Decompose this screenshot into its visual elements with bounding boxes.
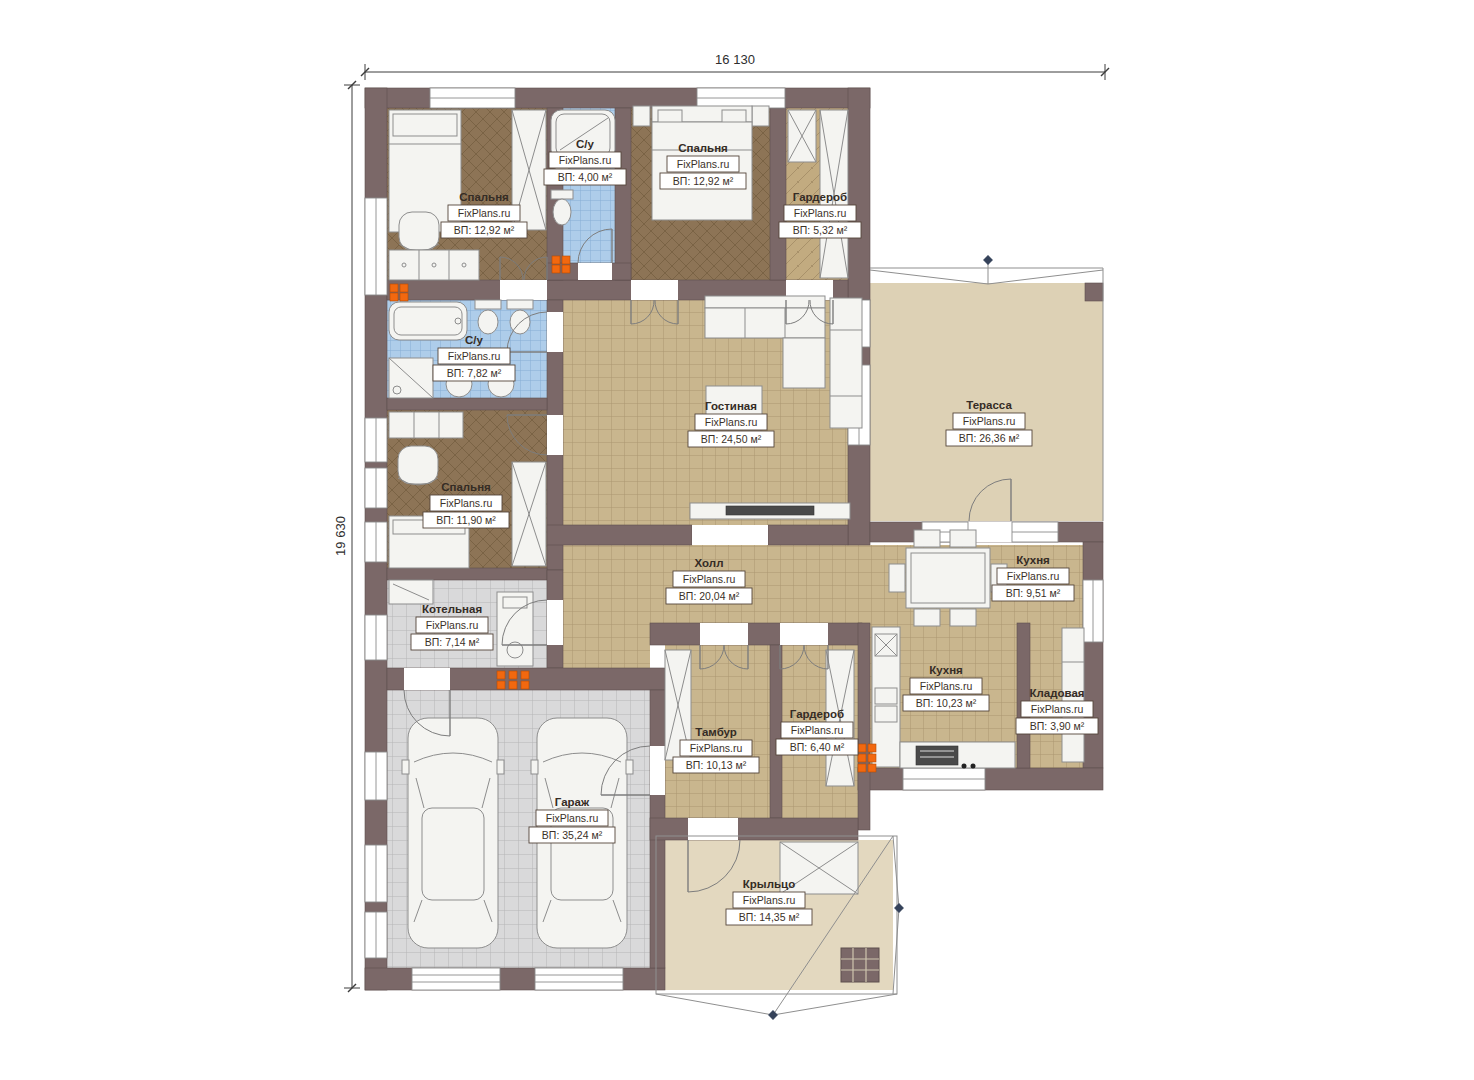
room-area: ВП: 7,82 м² xyxy=(447,367,502,379)
room-area: ВП: 26,36 м² xyxy=(959,432,1020,444)
window xyxy=(430,88,515,108)
canopy-marker xyxy=(895,904,903,912)
brand-watermark: FixPlans.ru xyxy=(743,894,796,906)
room-name: Спальня xyxy=(459,191,509,203)
brand-watermark: FixPlans.ru xyxy=(963,415,1016,427)
wall-bath1-bed2 xyxy=(615,108,631,280)
wall-bed3-boiler xyxy=(387,568,547,580)
room-name: С/у xyxy=(465,334,484,346)
wardrobe-icon xyxy=(788,110,816,162)
room-name: Гардероб xyxy=(790,708,844,720)
window xyxy=(365,845,387,902)
room-name: Холл xyxy=(695,557,724,569)
armchair-icon xyxy=(398,446,438,485)
window xyxy=(365,198,387,295)
room-area: ВП: 4,00 м² xyxy=(558,171,613,183)
chair-icon xyxy=(914,530,940,547)
brand-watermark: FixPlans.ru xyxy=(440,497,493,509)
dresser-icon xyxy=(389,250,479,280)
dimension-top: 16 130 xyxy=(361,52,1109,80)
brand-watermark: FixPlans.ru xyxy=(690,742,743,754)
room-area: ВП: 24,50 м² xyxy=(701,433,762,445)
window xyxy=(365,468,387,508)
garage-door xyxy=(412,968,500,990)
wall-wardrobe-kitchen xyxy=(858,623,870,830)
room-name: Спальня xyxy=(678,142,728,154)
room-area: ВП: 12,92 м² xyxy=(454,224,515,236)
wall-bed2-wardrobe xyxy=(770,108,786,280)
wall-terrace-corner xyxy=(1085,283,1103,301)
room-name: Тамбур xyxy=(695,726,737,738)
room-area: ВП: 3,90 м² xyxy=(1030,720,1085,732)
chair-icon xyxy=(950,609,976,626)
armchair-icon xyxy=(399,212,439,251)
window xyxy=(365,615,387,660)
room-area: ВП: 10,23 м² xyxy=(916,697,977,709)
room-area: ВП: 5,32 м² xyxy=(793,224,848,236)
tv-stand-icon xyxy=(690,503,850,519)
window xyxy=(365,522,387,562)
window xyxy=(365,418,387,462)
room-area: ВП: 11,90 м² xyxy=(436,514,496,526)
window xyxy=(903,768,985,790)
wall-living-hall-west xyxy=(547,525,692,545)
room-name: Котельная xyxy=(422,603,482,615)
brand-watermark: FixPlans.ru xyxy=(1007,570,1060,582)
wall-bath2-bed3 xyxy=(387,398,547,410)
room-name: Терасса xyxy=(966,399,1012,411)
wall-living-hall-east xyxy=(768,525,848,545)
car-icon xyxy=(402,718,504,948)
chair-icon xyxy=(950,530,976,547)
shower-icon xyxy=(389,358,433,398)
washer-icon xyxy=(389,580,433,604)
room-name: Спальня xyxy=(441,481,491,493)
dresser-icon xyxy=(389,412,463,438)
brand-watermark: FixPlans.ru xyxy=(448,350,501,362)
brand-watermark: FixPlans.ru xyxy=(559,154,612,166)
room-name: Гостиная xyxy=(705,400,757,412)
stove-knob xyxy=(971,764,976,769)
brand-watermark: FixPlans.ru xyxy=(1031,703,1084,715)
wall-vestibule-wardrobe xyxy=(770,645,782,818)
brand-watermark: FixPlans.ru xyxy=(458,207,511,219)
brand-watermark: FixPlans.ru xyxy=(794,207,847,219)
room-area: ВП: 6,40 м² xyxy=(790,741,845,753)
room-area: ВП: 10,13 м² xyxy=(686,759,747,771)
grate-icon xyxy=(841,948,879,982)
room-name: Гардероб xyxy=(793,191,847,203)
window xyxy=(1012,522,1058,542)
canopy-marker xyxy=(769,1011,777,1019)
room-area: ВП: 20,04 м² xyxy=(679,590,740,602)
wall-hall-south xyxy=(650,623,862,645)
room-name: Кладовая xyxy=(1029,687,1084,699)
room-area: ВП: 14,35 м² xyxy=(739,911,800,923)
room-name: С/у xyxy=(576,138,595,150)
window xyxy=(365,912,387,958)
floor-plan-drawing: 16 130 19 630 Спальня FixPlans.ru ВП: 12… xyxy=(0,0,1474,1080)
room-name: Кухня xyxy=(929,664,963,676)
room-area: ВП: 9,51 м² xyxy=(1006,587,1061,599)
wall-kitchen-pantry xyxy=(1017,623,1030,768)
stove-knob xyxy=(962,764,967,769)
floor-plan-page: 16 130 19 630 Спальня FixPlans.ru ВП: 12… xyxy=(0,0,1474,1080)
chair-icon xyxy=(914,609,940,626)
window xyxy=(697,88,785,108)
garage-door xyxy=(535,968,623,990)
brand-watermark: FixPlans.ru xyxy=(426,619,479,631)
nightstand-icon xyxy=(633,106,650,126)
floor-hall-strip xyxy=(563,623,650,668)
brand-watermark: FixPlans.ru xyxy=(920,680,973,692)
chair-icon xyxy=(889,564,905,592)
wardrobe-icon xyxy=(512,462,546,566)
kitchen-counter xyxy=(900,742,1015,769)
brand-watermark: FixPlans.ru xyxy=(791,724,844,736)
dimension-height-label: 19 630 xyxy=(333,516,348,556)
toilet-icon xyxy=(551,190,573,225)
console-icon xyxy=(830,298,862,428)
dining-table-icon xyxy=(906,548,990,608)
room-area: ВП: 35,24 м² xyxy=(542,829,603,841)
brand-watermark: FixPlans.ru xyxy=(677,158,730,170)
window xyxy=(365,752,387,800)
room-name: Кухня xyxy=(1016,554,1050,566)
dimension-left: 19 630 xyxy=(333,81,360,992)
window xyxy=(1083,580,1103,642)
room-area: ВП: 7,14 м² xyxy=(425,636,480,648)
room-label-boiler-room: Котельная FixPlans.ru ВП: 7,14 м² xyxy=(411,603,493,650)
room-area: ВП: 12,92 м² xyxy=(673,175,734,187)
brand-watermark: FixPlans.ru xyxy=(683,573,736,585)
roof-marker xyxy=(984,256,992,264)
dimension-width-label: 16 130 xyxy=(715,52,755,67)
nightstand-icon xyxy=(752,106,769,126)
boiler-icon xyxy=(497,592,533,666)
brand-watermark: FixPlans.ru xyxy=(705,416,758,428)
bathtub-icon xyxy=(389,302,467,340)
wall-vestibule-bottom xyxy=(650,818,858,840)
wall-right-upper xyxy=(848,88,870,300)
room-name: Гараж xyxy=(555,796,590,808)
room-name: Крыльцо xyxy=(743,878,795,890)
brand-watermark: FixPlans.ru xyxy=(546,812,599,824)
